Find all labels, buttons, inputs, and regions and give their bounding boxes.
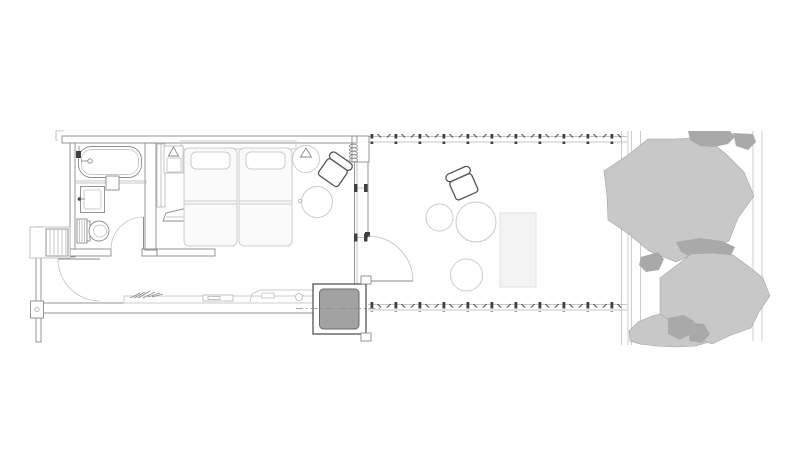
tub-step-bottom [361, 333, 371, 341]
twin-bed-1 [184, 148, 237, 246]
wall-post-box [31, 301, 44, 318]
top-exterior-wall [62, 136, 357, 143]
wall-niche [106, 176, 119, 190]
soaking-tub-basin [320, 289, 360, 329]
vanity-sink [78, 187, 105, 213]
pillow [246, 152, 285, 169]
twin-bed-2 [239, 148, 292, 246]
bathroom-left-wall [70, 143, 75, 257]
bedroom-partition-wall [157, 249, 215, 256]
toilet [77, 219, 109, 243]
pillow [191, 152, 230, 169]
bottom-exterior-wall [38, 303, 313, 313]
bathroom-bottom-wall-left [70, 249, 111, 256]
left-exterior-wall-lower [36, 318, 41, 342]
tub-step-top [361, 276, 371, 284]
louvered-cabinet [30, 227, 70, 258]
nightstand [164, 146, 183, 173]
lounger-mat [500, 213, 536, 287]
floor-plan-canvas [0, 0, 800, 470]
tray [203, 295, 233, 301]
deck-railing-top [368, 134, 627, 144]
floor-lamp [293, 146, 320, 173]
floor-plan-drawing [0, 0, 800, 470]
deck-railing-bottom [368, 302, 627, 312]
